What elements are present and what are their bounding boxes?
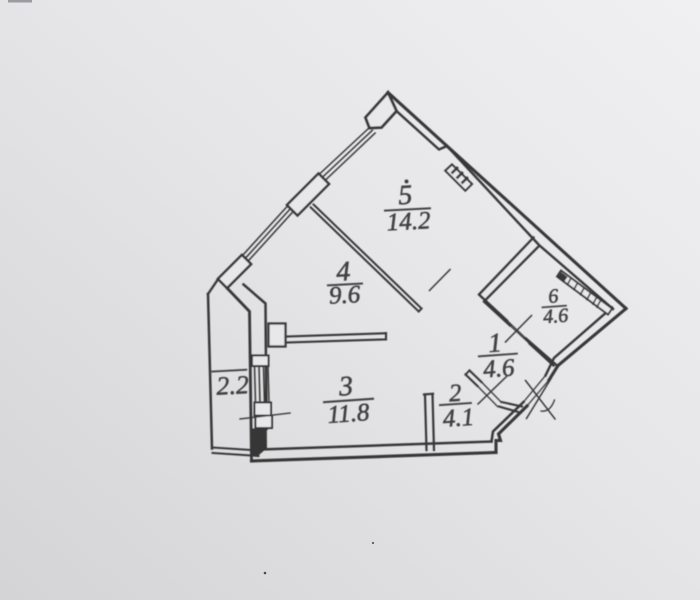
svg-text:11.8: 11.8 bbox=[327, 399, 371, 429]
svg-text:1: 1 bbox=[487, 327, 503, 358]
svg-text:4.6: 4.6 bbox=[542, 305, 568, 329]
svg-text:3: 3 bbox=[337, 371, 354, 403]
svg-text:5: 5 bbox=[397, 180, 413, 212]
svg-text:4.1: 4.1 bbox=[442, 404, 475, 433]
svg-text:9.6: 9.6 bbox=[328, 281, 361, 310]
svg-text:2.2: 2.2 bbox=[216, 370, 250, 401]
svg-text:4.6: 4.6 bbox=[482, 354, 516, 383]
svg-text:14.2: 14.2 bbox=[386, 207, 431, 236]
